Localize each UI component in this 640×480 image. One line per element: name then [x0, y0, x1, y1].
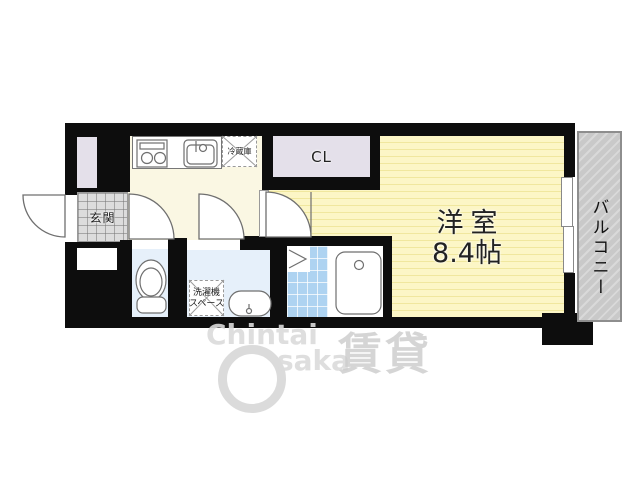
balcony-label: バルコニー	[588, 168, 610, 328]
bathroom-folding-door	[287, 246, 310, 272]
wall-right-lower	[564, 273, 575, 318]
window-sash-upper	[561, 177, 573, 227]
wall-right-upper	[564, 123, 575, 177]
watermark-kanji: 賃貸	[338, 318, 432, 382]
kitchen-counter	[132, 136, 222, 169]
main-room-door-frame	[259, 190, 269, 237]
closet-label: CL	[273, 145, 370, 169]
washer-space-label: 洗濯機 スペース	[185, 286, 228, 312]
wall-band-left	[120, 240, 132, 249]
main-room-label: 洋室 8.4帖	[372, 208, 562, 270]
washroom-doorway-gap	[188, 240, 240, 250]
refrigerator-label: 冷蔵庫	[222, 144, 257, 158]
room-toilet-floor	[132, 249, 168, 317]
toilet-doorway-gap	[132, 240, 168, 249]
window-sash-lower	[563, 226, 574, 273]
entrance-step	[77, 248, 117, 270]
entrance-label: 玄関	[77, 205, 128, 229]
pipe-space-box	[77, 137, 97, 188]
watermark-circle	[218, 345, 286, 413]
entrance-door-arc	[23, 195, 65, 237]
wall-bottom	[65, 317, 575, 328]
floor-plan: 玄関 冷蔵庫 CL 洋室 8.4帖 洗濯機 スペース バルコニー Chintai…	[0, 0, 640, 480]
wall-left-upper	[65, 123, 77, 195]
